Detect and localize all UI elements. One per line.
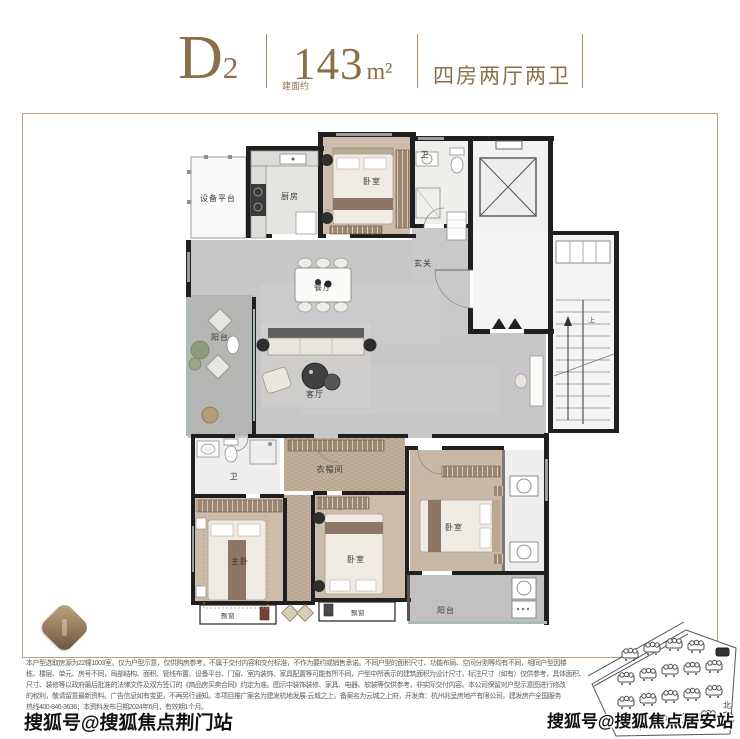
svg-text:上: 上 bbox=[589, 315, 596, 324]
wall bbox=[407, 575, 410, 621]
disclaimer-line: 的权利，敬请留意最新资料。广告信息如有变更，不再另行通知。本项目推广案名为建发杭… bbox=[26, 691, 588, 702]
wall bbox=[191, 438, 195, 601]
wall bbox=[442, 446, 504, 450]
wall bbox=[318, 132, 323, 238]
corridor-chevron-floor bbox=[284, 495, 311, 601]
watermark-bottom-left: 搜狐号@搜狐焦点荆门站 bbox=[23, 708, 233, 735]
deco-pillows bbox=[282, 605, 314, 622]
area-prefix: 建面约 bbox=[282, 81, 293, 99]
label-bedroom-top: 卧室 bbox=[363, 176, 381, 186]
balcony-glass bbox=[408, 621, 547, 624]
label-balcony-right: 阳台 bbox=[437, 605, 455, 615]
wall bbox=[260, 494, 284, 498]
window bbox=[187, 252, 190, 282]
bay-window-mid: 飘窗 bbox=[319, 602, 395, 621]
label-master: 主卧 bbox=[231, 556, 249, 566]
wall bbox=[468, 232, 473, 270]
label-bedroom-right: 卧室 bbox=[445, 522, 463, 532]
wall bbox=[452, 571, 548, 575]
unit-code: D2 bbox=[178, 28, 238, 104]
window bbox=[418, 137, 444, 140]
wall bbox=[246, 146, 324, 151]
wall bbox=[548, 231, 553, 433]
wall bbox=[502, 450, 505, 571]
watermark-bottom-right: 搜狐号@搜狐焦点居安站 bbox=[546, 707, 734, 732]
floor-plan: 飘窗 飘窗 上 bbox=[180, 124, 625, 654]
wall bbox=[191, 494, 246, 498]
balcony-right-items bbox=[512, 578, 536, 618]
label-kitchen: 厨房 bbox=[281, 191, 299, 201]
label-balcony-left: 阳台 bbox=[211, 332, 229, 342]
wall bbox=[468, 136, 473, 234]
wall bbox=[338, 434, 408, 438]
header-divider bbox=[582, 34, 583, 88]
wall bbox=[246, 146, 251, 238]
label-living: 客厅 bbox=[306, 389, 324, 399]
window bbox=[545, 459, 548, 501]
wall bbox=[548, 136, 553, 235]
bedroom-top-furniture bbox=[321, 148, 409, 234]
wall bbox=[313, 491, 327, 495]
window bbox=[192, 526, 194, 572]
wall bbox=[283, 498, 287, 601]
wall bbox=[432, 434, 548, 438]
wall bbox=[472, 329, 490, 334]
wall bbox=[350, 234, 416, 238]
foyer-cabinet bbox=[447, 212, 466, 240]
label-equipment-platform: 设备平台 bbox=[200, 193, 236, 203]
balcony-glass bbox=[186, 297, 189, 436]
header-divider bbox=[266, 34, 267, 88]
area-unit: m² bbox=[367, 59, 393, 85]
header-divider bbox=[417, 34, 418, 88]
disclaimer-line: 栋、楼层、单元、房号不同，局部结构、面积、管线布置、设备平台、门窗、室内装饰、家… bbox=[26, 669, 588, 680]
label-bedroom-mid: 卧室 bbox=[347, 554, 365, 564]
unit-area: 建面约143m² bbox=[282, 40, 392, 99]
disclaimer: 本户型选取房源为22幢1003室，仅为户型示意，仅供购房参考，不属于交付内容和交… bbox=[26, 658, 588, 713]
disclaimer-line: 尺寸、装修等以政府最后批准的法律文件及双方签订的《商品房买卖合同》约定为准。图示… bbox=[26, 680, 588, 691]
wall bbox=[191, 434, 235, 438]
cloakroom-closet bbox=[288, 440, 384, 451]
highlighted-building bbox=[716, 648, 729, 656]
window bbox=[253, 309, 255, 421]
svg-text:飘窗: 飘窗 bbox=[351, 608, 365, 617]
wall bbox=[248, 434, 314, 438]
lobby-floor bbox=[473, 232, 548, 329]
window bbox=[336, 133, 392, 136]
disclaimer-line: 本户型选取房源为22幢1003室，仅为户型示意，仅供购房参考，不属于交付内容和交… bbox=[26, 658, 588, 669]
label-bath-lower: 卫 bbox=[230, 472, 239, 481]
wall bbox=[614, 231, 619, 433]
label-foyer: 玄关 bbox=[414, 258, 432, 268]
wall bbox=[410, 136, 415, 228]
area-value: 143 bbox=[293, 39, 364, 89]
room-config: 四房两厅两卫 bbox=[433, 60, 571, 90]
wall bbox=[548, 231, 618, 235]
label-bath-top: 卫 bbox=[421, 150, 430, 159]
label-dining: 餐厅 bbox=[314, 283, 332, 292]
wall bbox=[342, 491, 408, 495]
brand-mark-icon bbox=[62, 619, 67, 636]
wall bbox=[468, 308, 473, 334]
wall bbox=[548, 429, 618, 433]
svg-text:飘窗: 飘窗 bbox=[221, 611, 235, 620]
label-cloakroom: 衣帽间 bbox=[317, 464, 344, 474]
